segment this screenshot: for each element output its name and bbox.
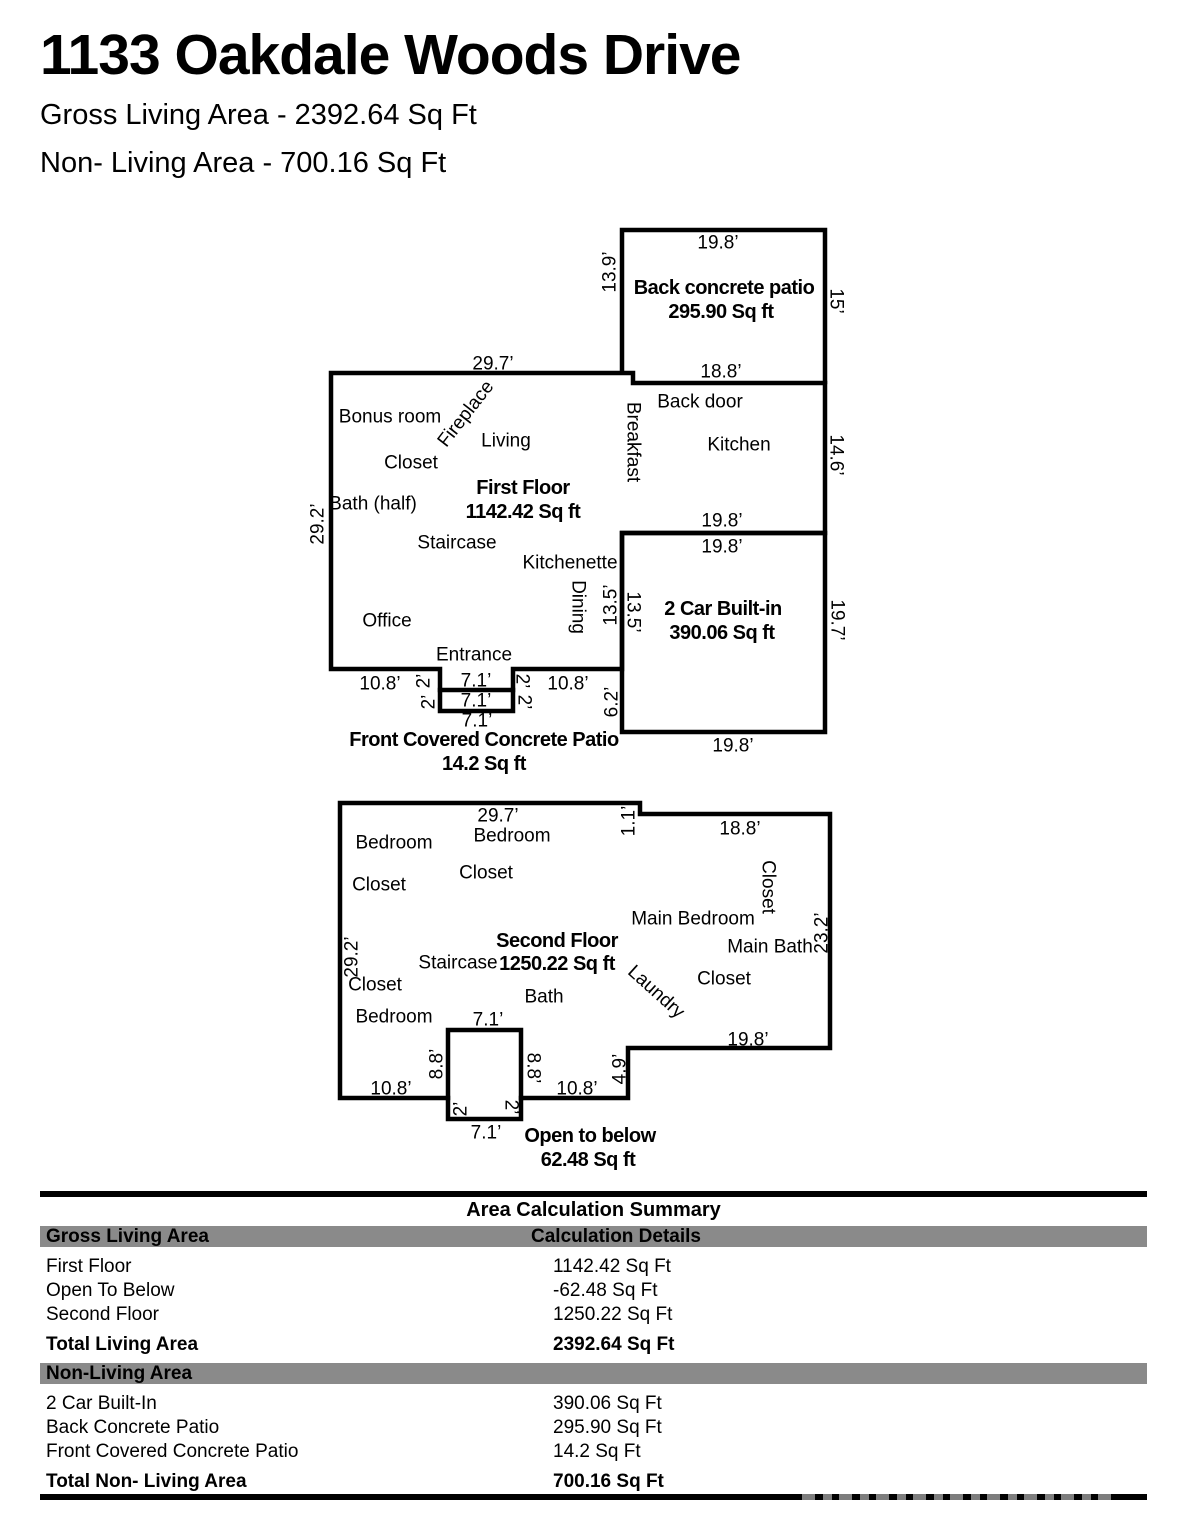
area-label: Open to below [524, 1126, 655, 1146]
open-to-below-outline [448, 1030, 521, 1098]
row-label: Total Non- Living Area [46, 1470, 247, 1494]
dimension-label: 18.8’ [700, 363, 741, 382]
floor-plan-page: 1133 Oakdale Woods Drive Gross Living Ar… [0, 0, 1187, 1536]
room-label: Office [362, 612, 411, 631]
calculation-details-header: Calculation Details [531, 1226, 701, 1247]
room-label: Closet [697, 970, 751, 989]
room-label: Bonus room [339, 408, 441, 427]
room-label: Main Bath [727, 938, 813, 957]
row-value: 295.90 Sq Ft [553, 1416, 662, 1440]
area-label: 62.48 Sq ft [541, 1150, 636, 1170]
room-label: Kitchenette [522, 554, 617, 573]
dimension-label: 2’ [513, 674, 532, 689]
dimension-label: 13.5’ [624, 591, 643, 632]
total-living-area-row: Total Living Area 2392.64 Sq Ft [40, 1333, 1147, 1357]
area-label: 390.06 Sq ft [669, 623, 774, 643]
row-label: Total Living Area [46, 1333, 198, 1357]
dimension-label: 19.8’ [727, 1031, 768, 1050]
summary-title: Area Calculation Summary [40, 1197, 1147, 1223]
row-label: Open To Below [46, 1279, 175, 1303]
dimension-label: 10.8’ [556, 1080, 597, 1099]
area-label: 1250.22 Sq ft [499, 954, 615, 974]
table-row: Open To Below -62.48 Sq Ft [40, 1279, 1147, 1303]
dimension-label: 19.8’ [701, 512, 742, 531]
dimension-label: 7.1’ [462, 712, 493, 731]
area-label: Back concrete patio [634, 278, 815, 298]
table-row: Front Covered Concrete Patio 14.2 Sq Ft [40, 1440, 1147, 1464]
area-label: 295.90 Sq ft [668, 302, 773, 322]
room-label: Kitchen [707, 436, 770, 455]
dimension-label: 18.8’ [719, 820, 760, 839]
table-row: First Floor 1142.42 Sq Ft [40, 1255, 1147, 1279]
dimension-label: 13.5’ [602, 584, 621, 625]
area-label: 14.2 Sq ft [442, 754, 526, 774]
dimension-label: 2’ [452, 1102, 471, 1117]
dimension-label: 7.1’ [471, 1124, 502, 1143]
gross-living-header-bar: Gross Living Area Calculation Details [40, 1226, 1147, 1247]
dimension-label: 10.8’ [547, 675, 588, 694]
row-value: 2392.64 Sq Ft [553, 1333, 674, 1357]
total-non-living-area-row: Total Non- Living Area 700.16 Sq Ft [40, 1470, 1147, 1494]
row-label: First Floor [46, 1255, 132, 1279]
row-value: 700.16 Sq Ft [553, 1470, 664, 1494]
row-label: Back Concrete Patio [46, 1416, 219, 1440]
dimension-label: 19.8’ [701, 538, 742, 557]
room-label: Closet [384, 454, 438, 473]
dimension-label: 8.8’ [524, 1053, 543, 1084]
room-label: Bedroom [355, 834, 432, 853]
gross-living-area-header: Gross Living Area [46, 1226, 209, 1247]
row-value: 14.2 Sq Ft [553, 1440, 641, 1464]
room-label: Bath [524, 988, 563, 1007]
room-label: Closet [348, 976, 402, 995]
room-label: Closet [352, 876, 406, 895]
dimension-label: 23.2’ [813, 912, 832, 953]
room-label: Staircase [418, 954, 497, 973]
dimension-label: 2’ [502, 1100, 521, 1115]
area-label: First Floor [476, 478, 569, 498]
row-label: Front Covered Concrete Patio [46, 1440, 298, 1464]
dimension-label: 10.8’ [370, 1080, 411, 1099]
room-label: Bedroom [355, 1008, 432, 1027]
table-row: Back Concrete Patio 295.90 Sq Ft [40, 1416, 1147, 1440]
dimension-label: 19.8’ [712, 737, 753, 756]
row-label: 2 Car Built-In [46, 1392, 157, 1416]
room-label: Closet [459, 864, 513, 883]
dimension-label: 10.8’ [359, 675, 400, 694]
dimension-label: 29.7’ [472, 355, 513, 374]
room-label: Bedroom [473, 827, 550, 846]
non-living-header-bar: Non-Living Area [40, 1363, 1147, 1384]
area-label: Front Covered Concrete Patio [349, 730, 618, 750]
dimension-label: 7.1’ [461, 692, 492, 711]
row-value: 390.06 Sq Ft [553, 1392, 662, 1416]
area-label: Second Floor [496, 931, 618, 951]
dimension-label: 7.1’ [473, 1011, 504, 1030]
gross-living-rows: First Floor 1142.42 Sq Ft Open To Below … [40, 1255, 1147, 1357]
area-label: 1142.42 Sq ft [466, 502, 581, 522]
dimension-label: 8.8’ [428, 1049, 447, 1080]
dimension-label: 29.2’ [309, 503, 328, 544]
watermark-remnant [802, 1494, 1117, 1500]
row-value: -62.48 Sq Ft [553, 1279, 658, 1303]
row-value: 1250.22 Sq Ft [553, 1303, 672, 1327]
room-label: Living [481, 432, 531, 451]
dimension-label: 2’ [515, 695, 534, 710]
dimension-label: 15’ [827, 288, 846, 313]
room-label: Back door [657, 393, 743, 412]
dimension-label: 19.7’ [828, 599, 847, 640]
room-label: Entrance [436, 646, 512, 665]
dimension-label: 4.9’ [611, 1054, 630, 1085]
room-label: Closet [759, 860, 778, 914]
non-living-rows: 2 Car Built-In 390.06 Sq Ft Back Concret… [40, 1392, 1147, 1494]
room-label: Bath (half) [329, 495, 417, 514]
table-row: 2 Car Built-In 390.06 Sq Ft [40, 1392, 1147, 1416]
summary-top-rule [40, 1191, 1147, 1197]
room-label: Main Bedroom [631, 910, 755, 929]
dimension-label: 29.7’ [477, 807, 518, 826]
room-label: Staircase [417, 534, 496, 553]
dimension-label: 14.6’ [827, 434, 846, 475]
room-label: Dining [569, 580, 588, 634]
table-row: Second Floor 1250.22 Sq Ft [40, 1303, 1147, 1327]
non-living-area-header: Non-Living Area [46, 1363, 192, 1384]
area-label: 2 Car Built-in [664, 599, 781, 619]
dimension-label: 1.1’ [620, 806, 639, 837]
dimension-label: 13.9’ [601, 251, 620, 292]
area-calculation-summary: Area Calculation Summary Gross Living Ar… [40, 1191, 1147, 1500]
row-value: 1142.42 Sq Ft [553, 1255, 671, 1279]
dimension-label: 6.2’ [603, 687, 622, 718]
dimension-label: 7.1’ [461, 672, 492, 691]
row-label: Second Floor [46, 1303, 159, 1327]
dimension-label: 29.2’ [343, 936, 362, 977]
dimension-label: 2’ [415, 674, 434, 689]
dimension-label: 2’ [420, 695, 439, 710]
summary-bottom-rule [40, 1494, 1147, 1500]
room-label: Breakfast [624, 402, 643, 482]
dimension-label: 19.8’ [697, 234, 738, 253]
